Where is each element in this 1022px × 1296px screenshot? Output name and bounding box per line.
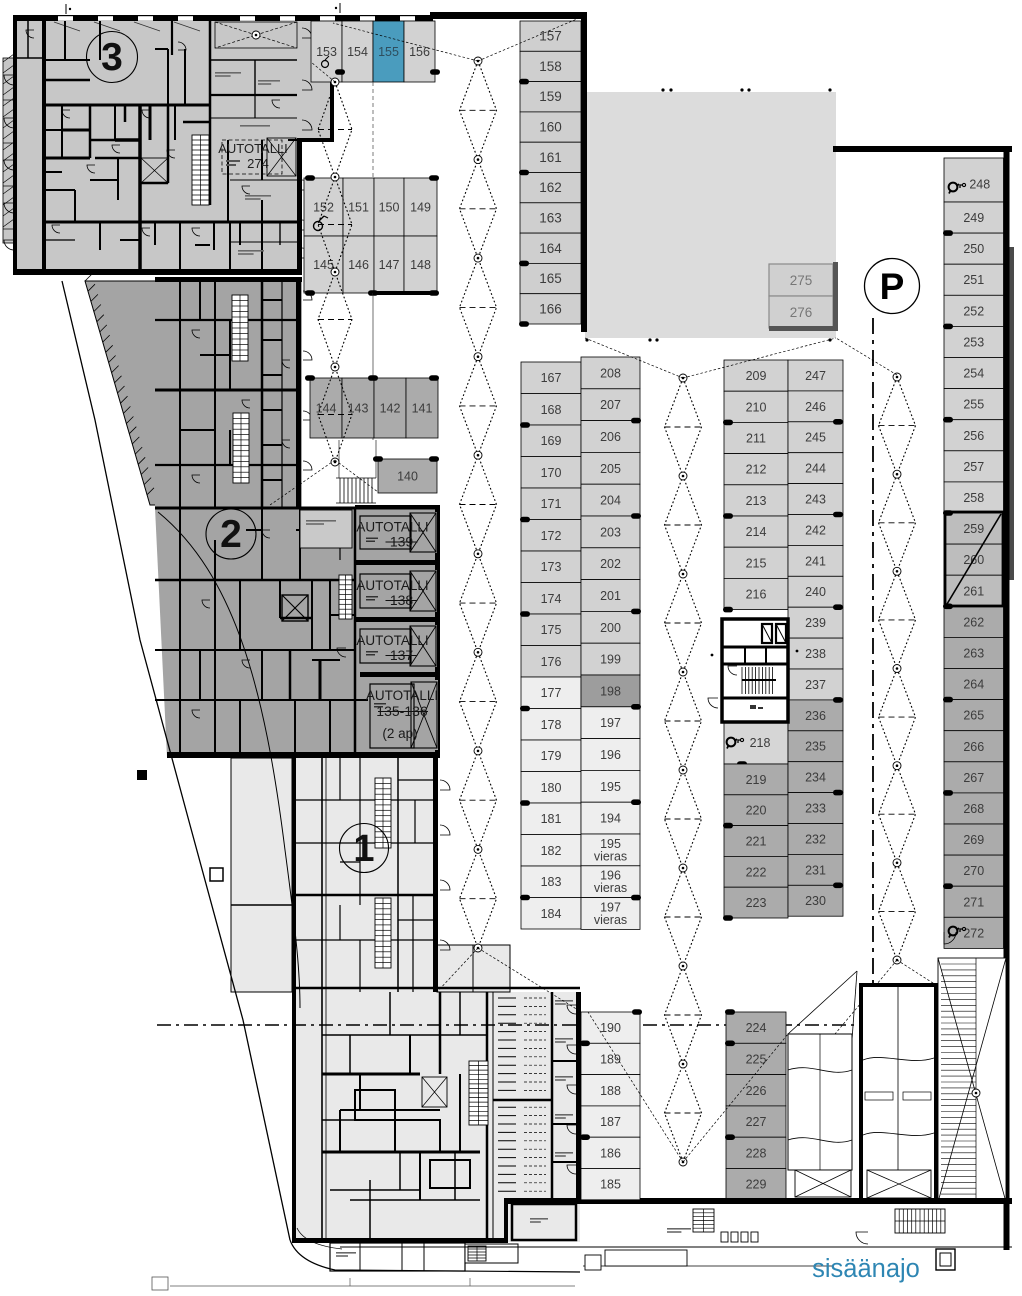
svg-text:sisäänajo: sisäänajo: [812, 1255, 920, 1283]
svg-text:167: 167: [541, 371, 562, 385]
svg-text:vieras: vieras: [594, 913, 627, 927]
svg-text:250: 250: [963, 242, 984, 256]
svg-text:222: 222: [746, 865, 767, 879]
svg-text:228: 228: [746, 1146, 767, 1160]
svg-text:169: 169: [541, 434, 562, 448]
svg-text:P: P: [880, 266, 905, 307]
svg-text:249: 249: [963, 211, 984, 225]
svg-text:190: 190: [600, 1021, 621, 1035]
svg-text:186: 186: [600, 1146, 621, 1160]
svg-text:(2 ap): (2 ap): [382, 726, 417, 741]
svg-text:272: 272: [963, 926, 984, 940]
svg-text:144: 144: [316, 402, 337, 416]
svg-text:256: 256: [963, 429, 984, 443]
svg-text:248: 248: [969, 178, 990, 192]
svg-text:264: 264: [963, 678, 984, 692]
svg-text:208: 208: [600, 366, 621, 380]
svg-text:AUTOTALLI: AUTOTALLI: [356, 578, 428, 593]
svg-text:214: 214: [746, 525, 767, 539]
svg-text:241: 241: [805, 554, 826, 568]
svg-text:150: 150: [379, 201, 400, 215]
svg-text:213: 213: [746, 494, 767, 508]
svg-text:266: 266: [963, 740, 984, 754]
svg-text:269: 269: [963, 833, 984, 847]
svg-text:174: 174: [541, 592, 562, 606]
svg-text:159: 159: [539, 89, 562, 104]
svg-text:182: 182: [541, 844, 562, 858]
svg-text:148: 148: [410, 258, 431, 272]
svg-text:274: 274: [247, 156, 269, 171]
svg-text:151: 151: [348, 201, 369, 215]
svg-text:203: 203: [600, 525, 621, 539]
svg-text:255: 255: [963, 398, 984, 412]
svg-text:146: 146: [348, 258, 369, 272]
svg-text:172: 172: [541, 529, 562, 543]
svg-text:143: 143: [348, 402, 369, 416]
svg-text:276: 276: [790, 305, 813, 320]
svg-text:209: 209: [746, 369, 767, 383]
svg-text:231: 231: [805, 863, 826, 877]
svg-text:201: 201: [600, 589, 621, 603]
svg-text:AUTOTALLI: AUTOTALLI: [218, 141, 288, 156]
svg-text:198: 198: [600, 684, 621, 698]
svg-text:163: 163: [539, 211, 562, 226]
svg-text:161: 161: [539, 150, 562, 165]
svg-text:252: 252: [963, 304, 984, 318]
svg-text:237: 237: [805, 678, 826, 692]
svg-text:166: 166: [539, 301, 562, 316]
svg-text:236: 236: [805, 709, 826, 723]
svg-text:245: 245: [805, 431, 826, 445]
svg-text:156: 156: [409, 45, 430, 59]
svg-text:263: 263: [963, 647, 984, 661]
svg-text:257: 257: [963, 460, 984, 474]
svg-text:215: 215: [746, 556, 767, 570]
svg-text:162: 162: [539, 180, 562, 195]
svg-text:AUTOTALLI: AUTOTALLI: [366, 688, 438, 703]
svg-text:204: 204: [600, 494, 621, 508]
svg-text:175: 175: [541, 623, 562, 637]
svg-text:242: 242: [805, 523, 826, 537]
svg-text:202: 202: [600, 557, 621, 571]
svg-text:226: 226: [746, 1084, 767, 1098]
svg-text:212: 212: [746, 463, 767, 477]
svg-text:188: 188: [600, 1084, 621, 1098]
svg-text:205: 205: [600, 462, 621, 476]
svg-text:258: 258: [963, 491, 984, 505]
svg-text:2: 2: [220, 513, 242, 556]
svg-text:229: 229: [746, 1178, 767, 1192]
svg-text:173: 173: [541, 560, 562, 574]
svg-text:vieras: vieras: [594, 849, 627, 863]
svg-text:239: 239: [805, 616, 826, 630]
svg-text:177: 177: [541, 686, 562, 700]
svg-text:221: 221: [746, 835, 767, 849]
svg-text:232: 232: [805, 832, 826, 846]
svg-text:243: 243: [805, 493, 826, 507]
svg-text:211: 211: [746, 432, 766, 446]
svg-text:140: 140: [397, 470, 418, 484]
svg-text:179: 179: [541, 749, 562, 763]
svg-text:247: 247: [805, 369, 826, 383]
svg-text:158: 158: [539, 59, 562, 74]
svg-text:184: 184: [541, 907, 562, 921]
svg-text:AUTOTALLI: AUTOTALLI: [356, 520, 428, 535]
svg-text:246: 246: [805, 400, 826, 414]
svg-text:224: 224: [746, 1021, 767, 1035]
svg-text:197: 197: [600, 716, 621, 730]
svg-text:194: 194: [600, 812, 621, 826]
svg-text:vieras: vieras: [594, 881, 627, 895]
svg-text:271: 271: [963, 895, 984, 909]
svg-text:147: 147: [379, 258, 400, 272]
svg-text:275: 275: [790, 273, 813, 288]
svg-text:253: 253: [963, 336, 984, 350]
svg-text:216: 216: [746, 588, 767, 602]
svg-text:251: 251: [963, 273, 984, 287]
svg-text:219: 219: [746, 773, 767, 787]
svg-text:262: 262: [963, 615, 984, 629]
svg-text:195: 195: [600, 780, 621, 794]
svg-text:206: 206: [600, 430, 621, 444]
svg-text:196: 196: [600, 748, 621, 762]
svg-text:180: 180: [541, 781, 562, 795]
svg-text:233: 233: [805, 802, 826, 816]
svg-text:265: 265: [963, 709, 984, 723]
svg-text:189: 189: [600, 1053, 621, 1067]
svg-text:170: 170: [541, 466, 562, 480]
svg-text:160: 160: [539, 120, 562, 135]
svg-text:267: 267: [963, 771, 984, 785]
svg-text:199: 199: [600, 653, 621, 667]
svg-text:176: 176: [541, 655, 562, 669]
svg-text:230: 230: [805, 894, 826, 908]
svg-text:181: 181: [541, 812, 562, 826]
svg-text:218: 218: [750, 736, 771, 750]
svg-text:154: 154: [347, 45, 368, 59]
svg-text:227: 227: [746, 1115, 767, 1129]
svg-text:234: 234: [805, 771, 826, 785]
svg-text:185: 185: [600, 1178, 621, 1192]
svg-text:171: 171: [541, 497, 562, 511]
svg-text:240: 240: [805, 585, 826, 599]
svg-text:210: 210: [746, 400, 767, 414]
svg-text:259: 259: [963, 522, 984, 536]
svg-text:157: 157: [539, 29, 562, 44]
svg-text:261: 261: [963, 584, 984, 598]
svg-text:183: 183: [541, 875, 562, 889]
svg-text:164: 164: [539, 241, 562, 256]
svg-text:220: 220: [746, 804, 767, 818]
svg-text:168: 168: [541, 403, 562, 417]
svg-text:238: 238: [805, 647, 826, 661]
svg-text:3: 3: [101, 36, 123, 79]
svg-text:149: 149: [410, 201, 431, 215]
svg-text:244: 244: [805, 462, 826, 476]
svg-text:200: 200: [600, 621, 621, 635]
svg-text:187: 187: [600, 1115, 621, 1129]
svg-text:178: 178: [541, 718, 562, 732]
svg-text:207: 207: [600, 398, 621, 412]
svg-text:223: 223: [746, 896, 767, 910]
svg-text:AUTOTALLI: AUTOTALLI: [356, 633, 428, 648]
svg-text:165: 165: [539, 271, 562, 286]
svg-text:235: 235: [805, 740, 826, 754]
svg-text:153: 153: [316, 45, 337, 59]
svg-text:142: 142: [380, 402, 401, 416]
svg-text:1: 1: [353, 828, 374, 870]
svg-text:270: 270: [963, 864, 984, 878]
svg-text:155: 155: [378, 45, 399, 59]
svg-text:268: 268: [963, 802, 984, 816]
svg-text:254: 254: [963, 367, 984, 381]
svg-text:141: 141: [412, 402, 433, 416]
